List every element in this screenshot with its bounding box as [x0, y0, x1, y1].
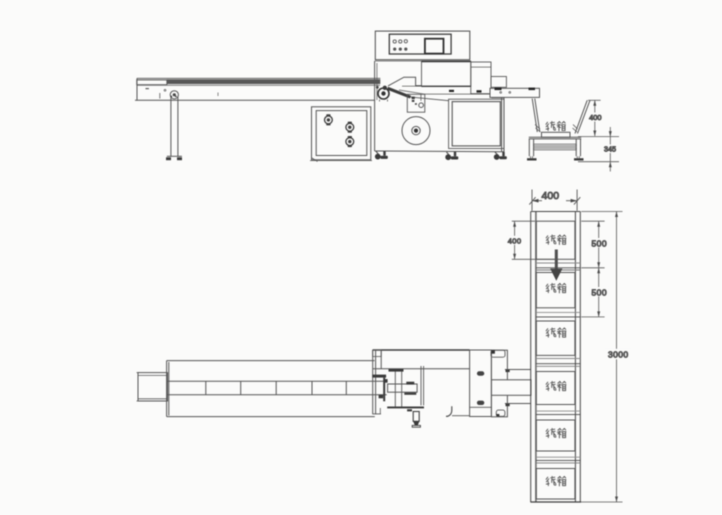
svg-text:500: 500	[591, 238, 607, 248]
svg-text:3000: 3000	[608, 350, 629, 360]
svg-text:400: 400	[589, 113, 601, 122]
svg-text:500: 500	[591, 287, 607, 297]
svg-text:400: 400	[542, 190, 560, 202]
svg-text:400: 400	[508, 237, 522, 246]
svg-text:345: 345	[604, 145, 616, 154]
